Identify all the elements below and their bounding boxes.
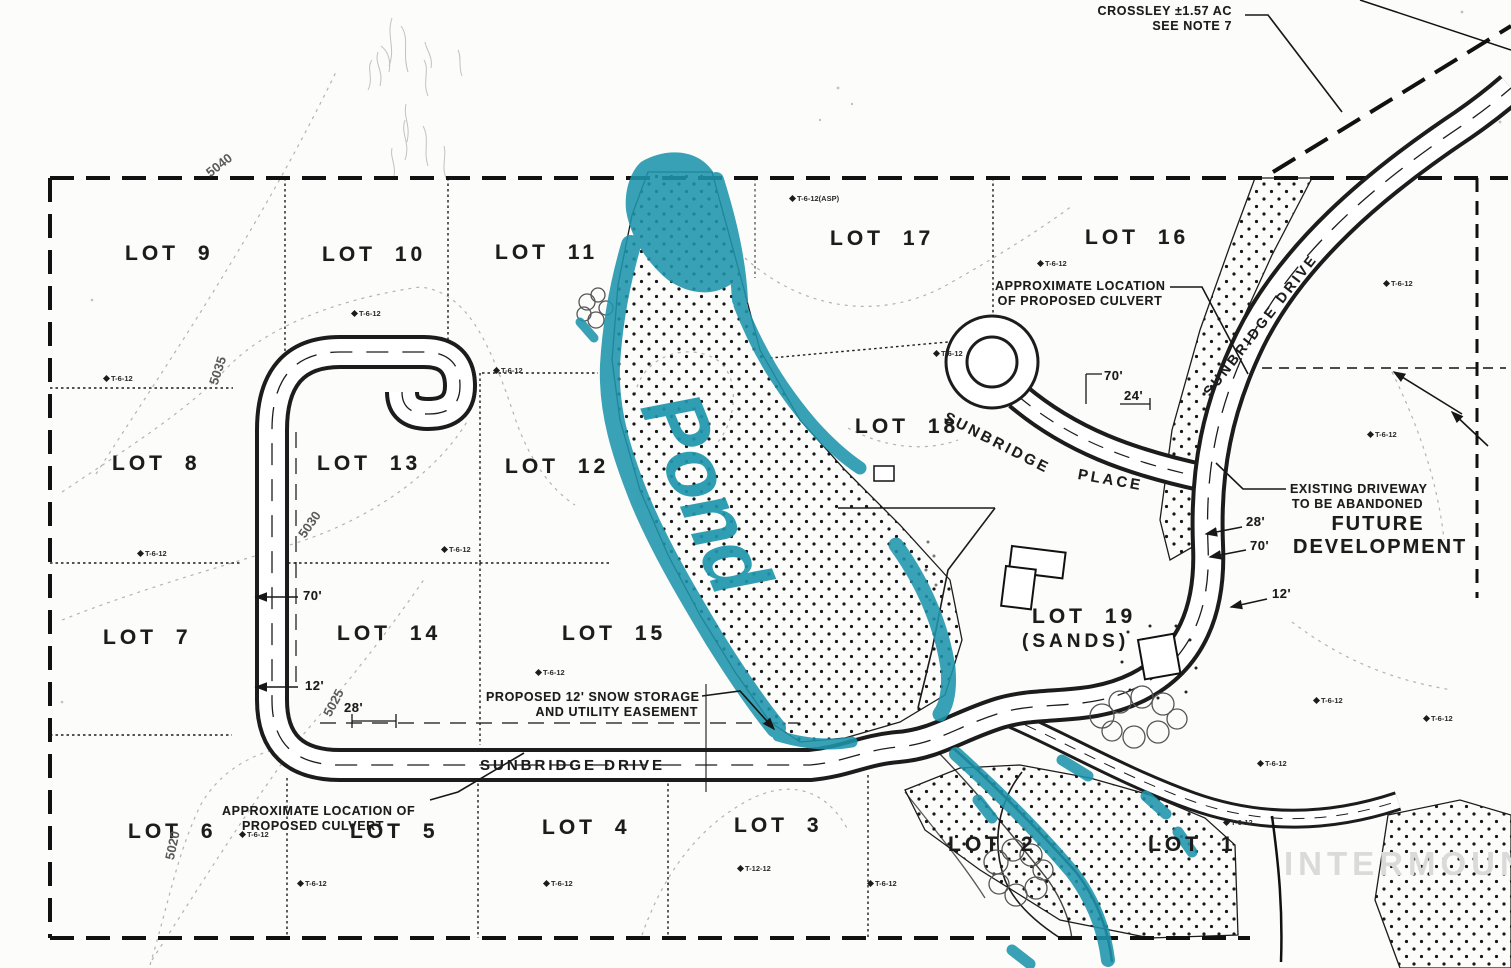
marker-dot: [351, 310, 358, 317]
dim-right-12-tick: [1231, 599, 1267, 607]
survey-marker: T-6-12(ASP): [790, 194, 839, 203]
lot-label-15: LOT 15: [562, 622, 666, 646]
crossley-line1: CROSSLEY ±1.57 AC: [1090, 4, 1232, 19]
lot-label-14: LOT 14: [337, 622, 441, 646]
marker-dot: [103, 375, 110, 382]
marker-dot: [933, 350, 940, 357]
lot-label-1: LOT 1: [1148, 833, 1237, 857]
lot-label-9: LOT 9: [125, 242, 214, 266]
survey-marker: T-6-12: [104, 374, 133, 383]
marker-dot: [1383, 280, 1390, 287]
survey-marker: T-6-12: [1224, 818, 1253, 827]
dim-place-24: 24': [1124, 388, 1143, 403]
culvert-note-top: APPROXIMATE LOCATION OF PROPOSED CULVERT: [995, 279, 1165, 309]
survey-marker: T-6-12: [1038, 259, 1067, 268]
survey-marker: T-6-12: [934, 349, 963, 358]
crossley-leader: [1245, 15, 1342, 112]
survey-marker: T-6-12: [298, 879, 327, 888]
marker-dot: [1257, 760, 1264, 767]
survey-marker: T-6-12: [536, 668, 565, 677]
driveway-arrow-2: [1452, 412, 1488, 446]
snow-storage-note: PROPOSED 12' SNOW STORAGE AND UTILITY EA…: [486, 690, 698, 720]
survey-marker: T-6-12: [494, 366, 523, 375]
marker-dot: [239, 831, 246, 838]
dim-right-28: 28': [1246, 514, 1265, 529]
lot-label-8: LOT 8: [112, 452, 201, 476]
survey-marker: T-6-12: [544, 879, 573, 888]
lot-label-4: LOT 4: [542, 816, 631, 840]
survey-marker: T-6-12: [138, 549, 167, 558]
survey-marker: T-6-12: [352, 309, 381, 318]
marker-dot: [297, 880, 304, 887]
lot-label-12: LOT 12: [505, 455, 609, 479]
intermountain-watermark: INTERMOUNTAIN: [1284, 845, 1511, 883]
marker-dot: [867, 880, 874, 887]
driveway-note: EXISTING DRIVEWAY TO BE ABANDONED: [1290, 482, 1425, 512]
marker-dot: [1313, 697, 1320, 704]
existing-house-2: [1001, 566, 1036, 609]
corner-hatch: [1375, 800, 1511, 968]
lot-label-13: LOT 13: [317, 452, 421, 476]
survey-marker: T-6-12: [1424, 714, 1453, 723]
marker-dot: [1423, 715, 1430, 722]
marker-dot: [1037, 260, 1044, 267]
survey-marker: T-6-12: [1368, 430, 1397, 439]
small-structure: [874, 466, 894, 481]
lot-label-7: LOT 7: [103, 626, 192, 650]
marker-dot: [543, 880, 550, 887]
lot-label-16: LOT 16: [1085, 226, 1189, 250]
survey-marker: T-12-12: [738, 864, 771, 873]
lot-label-2: LOT 2: [948, 833, 1037, 857]
existing-building: [1138, 634, 1180, 680]
plat-map: LOT 9 LOT 10 LOT 11 LOT 17 LOT 16 LOT 8 …: [0, 0, 1511, 968]
lot-label-10: LOT 10: [322, 243, 426, 267]
dim-left-70: 70': [303, 588, 322, 603]
marker-dot: [493, 367, 500, 374]
marker-dot: [441, 546, 448, 553]
dim-right-70: 70': [1250, 538, 1269, 553]
dim-left-12: 12': [305, 678, 324, 693]
sunbridge-place-culdesac: [946, 316, 1038, 408]
lot-label-3: LOT 3: [734, 814, 823, 838]
dim-place-70: 70': [1104, 368, 1123, 383]
marker-dot: [1367, 431, 1374, 438]
lot-label-11: LOT 11: [495, 241, 598, 265]
marker-dot: [137, 550, 144, 557]
marker-dot: [789, 195, 796, 202]
sunbridge-drive-label-bottom: SUNBRIDGE DRIVE: [480, 757, 665, 774]
marker-dot: [737, 865, 744, 872]
survey-marker: T-6-12: [240, 830, 269, 839]
dim-left-28-tick: [352, 714, 396, 728]
dim-left-28: 28': [344, 700, 363, 715]
survey-marker: T-6-12: [1314, 696, 1343, 705]
survey-marker: T-6-12: [442, 545, 471, 554]
survey-marker: T-6-12: [868, 879, 897, 888]
crossley-note: CROSSLEY ±1.57 AC SEE NOTE 7: [1090, 4, 1232, 34]
lot-label-19-sub: (SANDS): [1022, 631, 1129, 653]
survey-marker: T-6-12: [1258, 759, 1287, 768]
marker-dot: [1223, 819, 1230, 826]
lot-label-19: LOT 19: [1032, 605, 1136, 629]
dim-right-12: 12': [1272, 586, 1291, 601]
marker-dot: [535, 669, 542, 676]
lot-label-17: LOT 17: [830, 227, 934, 251]
survey-marker: T-6-12: [1384, 279, 1413, 288]
future-development-label: FUTURE DEVELOPMENT: [1293, 513, 1463, 559]
crossley-line2: SEE NOTE 7: [1090, 19, 1232, 34]
driveway-arrow-1: [1394, 372, 1462, 414]
